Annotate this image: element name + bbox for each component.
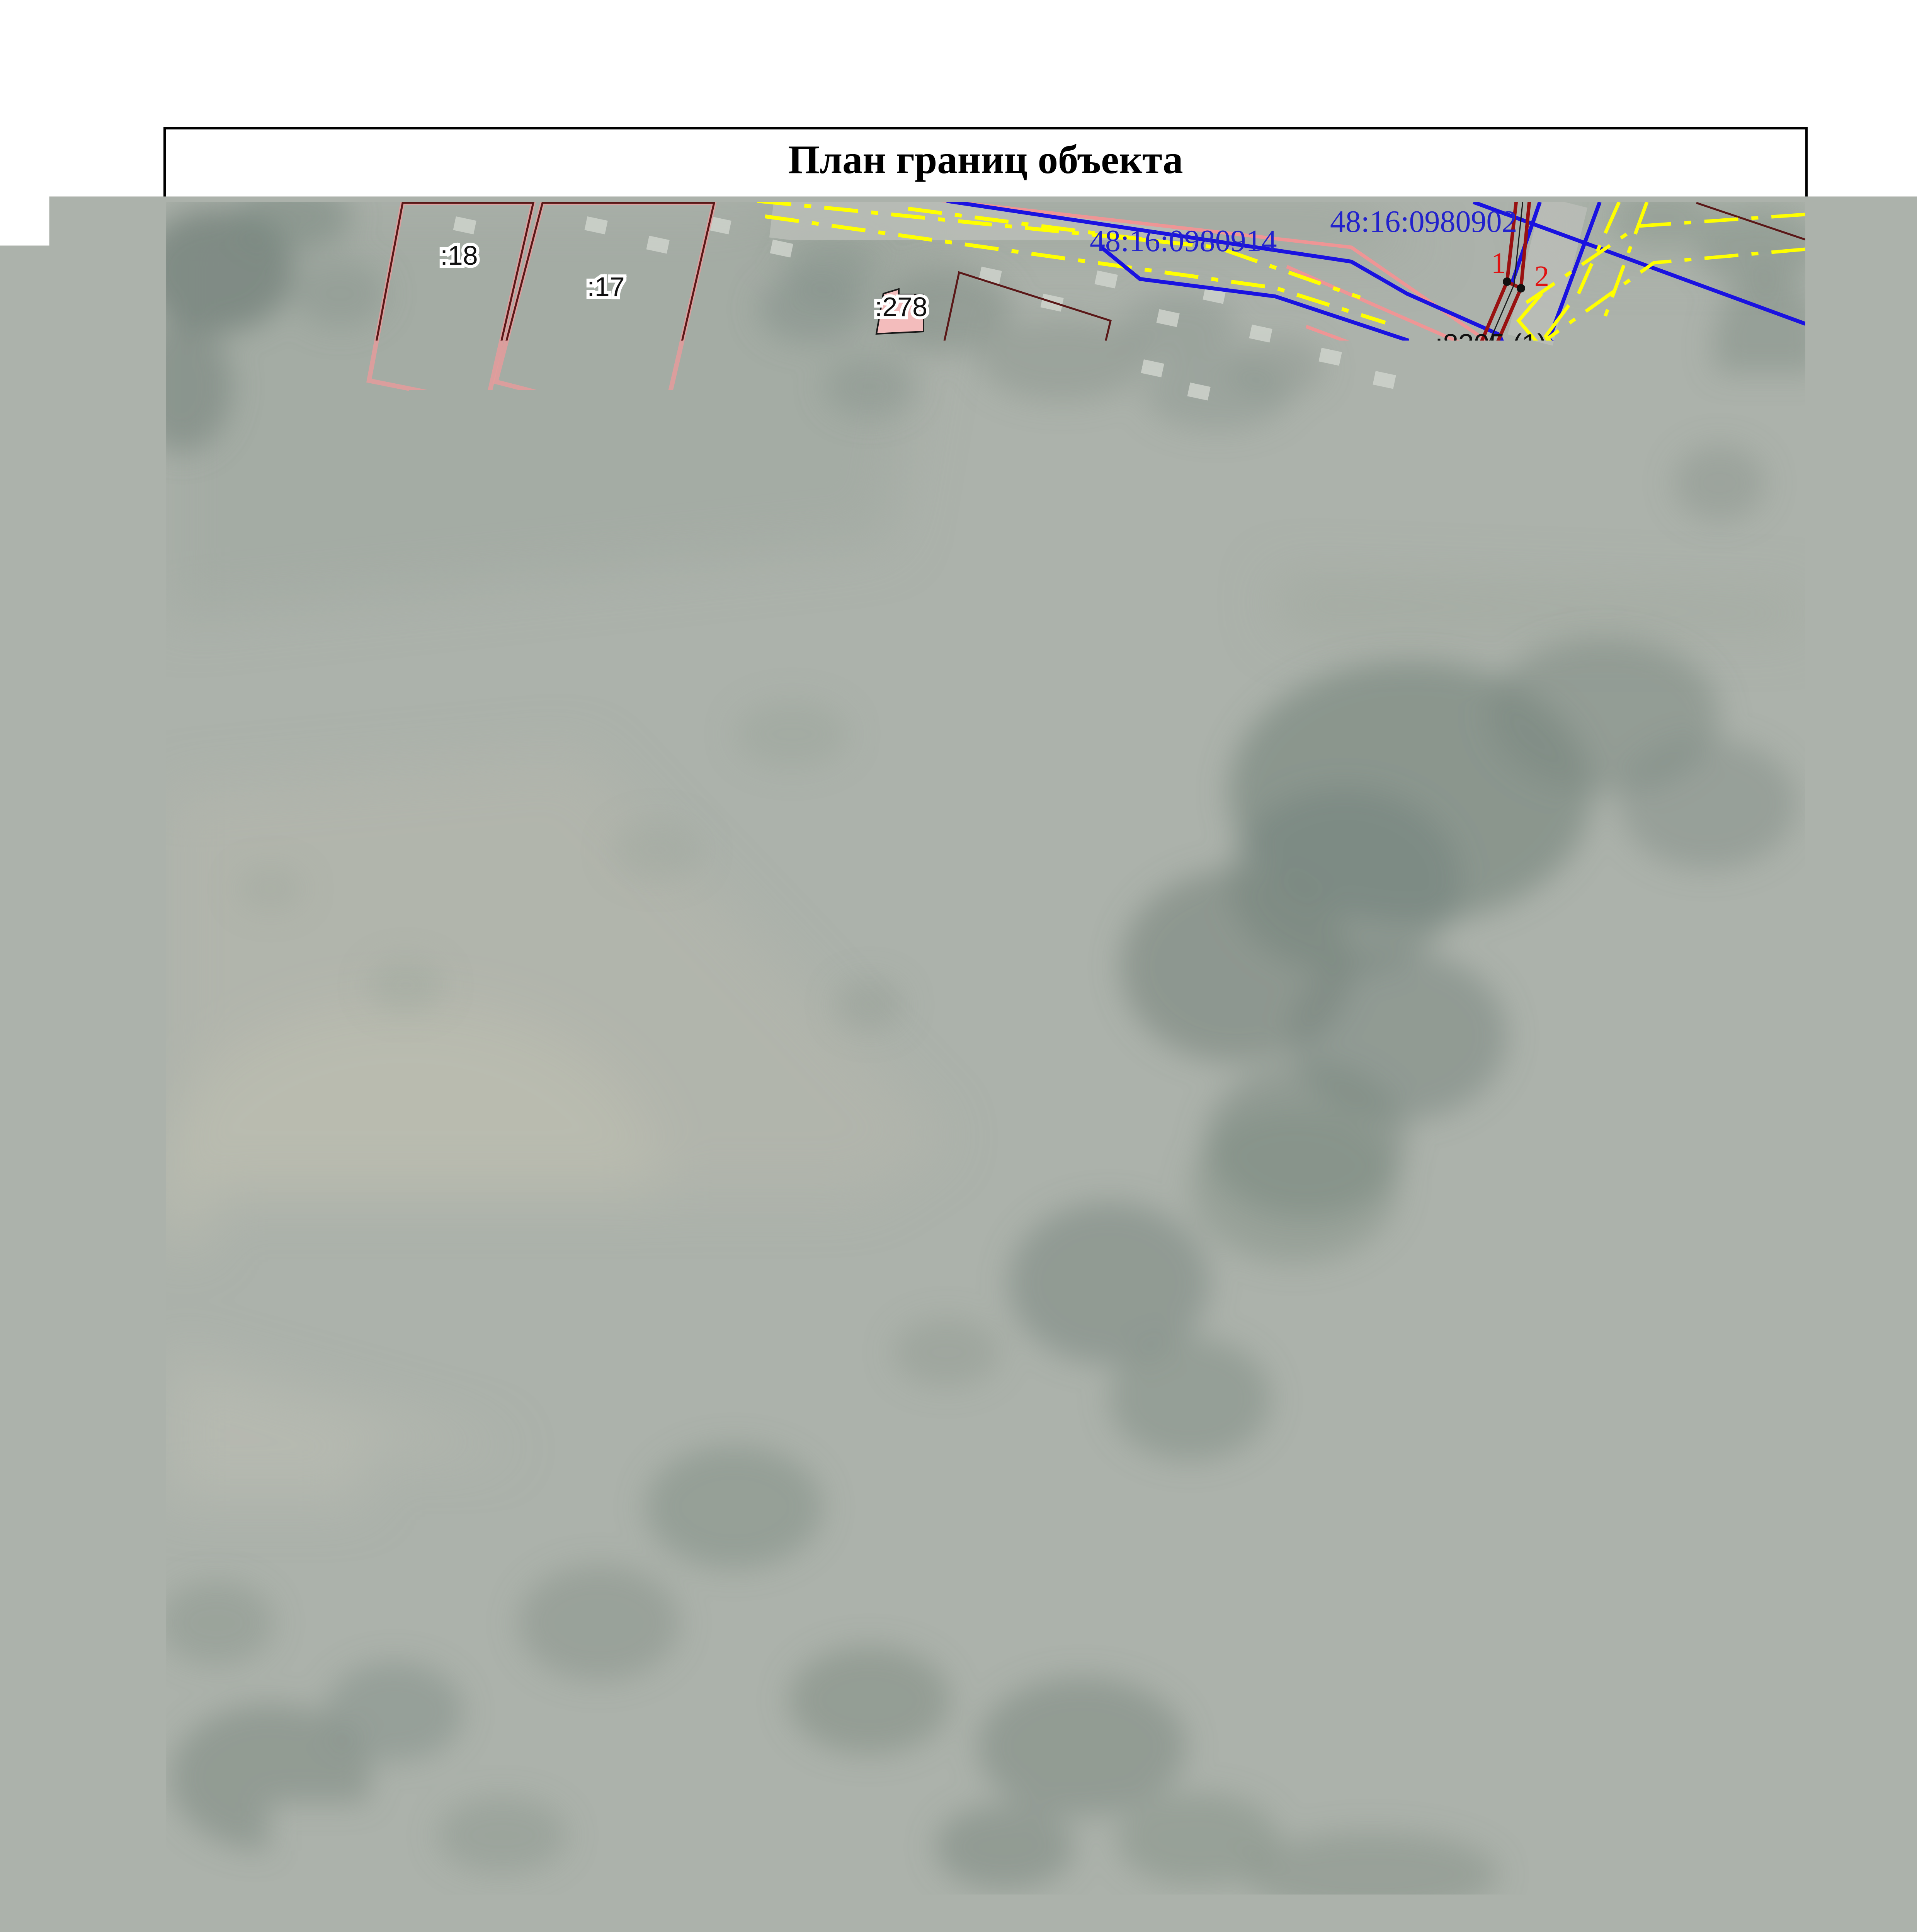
svg-text:39: 39 bbox=[1080, 796, 1109, 829]
svg-text:48:16:0980904: 48:16:0980904 bbox=[490, 929, 677, 963]
svg-text::40: :40 bbox=[1022, 1216, 1060, 1246]
svg-text::14: :14 bbox=[1119, 490, 1157, 520]
svg-text:30: 30 bbox=[553, 1672, 582, 1704]
svg-text:980914: 980914 bbox=[1065, 855, 1218, 912]
svg-text::17: :17 bbox=[587, 272, 624, 302]
svg-text:15: 15 bbox=[834, 1412, 864, 1444]
svg-text:2: 2 bbox=[1534, 260, 1549, 293]
svg-text:48:16:0980902: 48:16:0980902 bbox=[1330, 205, 1517, 239]
svg-text:36: 36 bbox=[844, 1269, 873, 1302]
svg-text:13: 13 bbox=[1020, 1087, 1050, 1120]
svg-text:48:16:0980903: 48:16:0980903 bbox=[1195, 1021, 1382, 1055]
svg-text:6: 6 bbox=[1370, 557, 1385, 589]
svg-text:5: 5 bbox=[1405, 474, 1420, 507]
svg-text::444: :444 bbox=[1423, 533, 1476, 563]
svg-text:40: 40 bbox=[1124, 728, 1154, 760]
svg-text:48:16:0980914: 48:16:0980914 bbox=[1090, 224, 1277, 258]
svg-text:45: 45 bbox=[1370, 415, 1399, 448]
svg-text:7: 7 bbox=[1304, 676, 1318, 709]
svg-text:17: 17 bbox=[777, 1517, 806, 1550]
svg-text:1: 1 bbox=[1491, 247, 1506, 279]
svg-text:20: 20 bbox=[603, 1696, 632, 1729]
svg-text::8: :8 bbox=[1591, 559, 1613, 589]
svg-text:31: 31 bbox=[620, 1595, 650, 1628]
svg-text:41: 41 bbox=[1174, 685, 1204, 718]
svg-text:29: 29 bbox=[520, 1715, 549, 1748]
svg-text::8305 (1): :8305 (1) bbox=[1435, 329, 1546, 360]
svg-text:16: 16 bbox=[799, 1484, 829, 1517]
svg-text:35: 35 bbox=[780, 1388, 810, 1420]
svg-text:26: 26 bbox=[544, 1751, 574, 1783]
svg-text::8305 (2): :8305 (2) bbox=[685, 1702, 797, 1733]
svg-text:11: 11 bbox=[1141, 817, 1169, 849]
svg-text:9: 9 bbox=[1220, 738, 1234, 770]
svg-text:3: 3 bbox=[1484, 395, 1499, 428]
svg-text:8: 8 bbox=[1279, 709, 1294, 742]
svg-text:43: 43 bbox=[1254, 641, 1284, 674]
svg-text:14: 14 bbox=[895, 1291, 924, 1323]
svg-text:33: 33 bbox=[725, 1492, 754, 1524]
svg-text:4: 4 bbox=[1435, 481, 1450, 514]
svg-text:19: 19 bbox=[671, 1620, 701, 1652]
svg-text:10: 10 bbox=[1177, 756, 1206, 788]
svg-text::278: :278 bbox=[875, 292, 927, 322]
svg-text::18: :18 bbox=[440, 240, 478, 270]
svg-text:12: 12 bbox=[1074, 950, 1104, 983]
svg-text:37: 37 bbox=[965, 1064, 995, 1097]
svg-text:34: 34 bbox=[744, 1460, 774, 1493]
svg-text:21: 21 bbox=[572, 1728, 601, 1761]
svg-text:22: 22 bbox=[611, 1738, 640, 1771]
svg-text:38: 38 bbox=[1015, 931, 1045, 963]
svg-text::15: :15 bbox=[994, 398, 1031, 428]
svg-text:32: 32 bbox=[674, 1544, 704, 1577]
svg-text:47: 47 bbox=[1423, 374, 1453, 406]
svg-text::151: :151 bbox=[1108, 1090, 1160, 1120]
svg-text:18: 18 bbox=[718, 1570, 748, 1602]
svg-text:23: 23 bbox=[618, 1777, 648, 1810]
svg-text:44: 44 bbox=[1310, 539, 1339, 571]
svg-text:46: 46 bbox=[1405, 423, 1434, 456]
